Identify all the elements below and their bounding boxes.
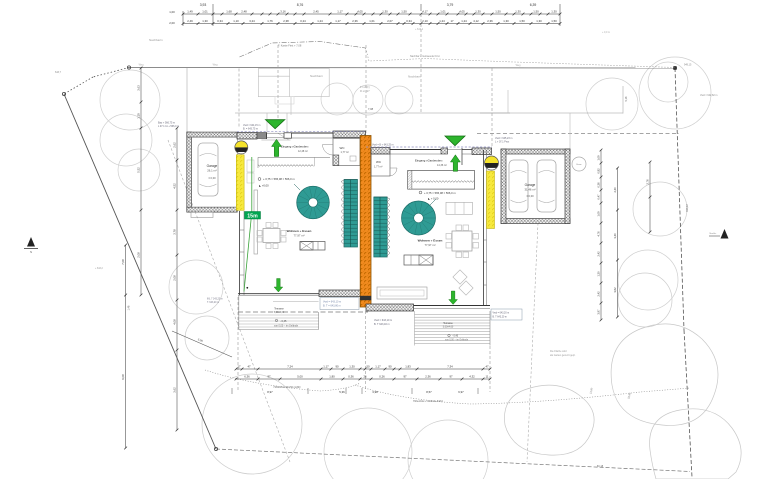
svg-text:949,12: 949,12: [686, 204, 689, 212]
svg-text:15m: 15m: [247, 213, 258, 219]
svg-text:3,97: 3,97: [597, 309, 601, 315]
svg-text:B. T 643,40 m: B. T 643,40 m: [374, 323, 390, 326]
svg-text:4,52: 4,52: [173, 183, 177, 189]
svg-text:1,30: 1,30: [382, 9, 388, 13]
svg-text:90: 90: [335, 364, 339, 368]
svg-text:1,49: 1,49: [187, 9, 193, 13]
svg-text:- 0,45: - 0,45: [280, 320, 287, 323]
svg-text:+ 643,2: + 643,2: [95, 268, 103, 270]
svg-text:3,78: 3,78: [173, 229, 177, 235]
svg-text:2,49: 2,49: [187, 19, 193, 23]
svg-text:1,77 m²: 1,77 m²: [341, 151, 350, 154]
svg-text:9,18: 9,18: [625, 96, 628, 101]
svg-text:1,80: 1,80: [329, 374, 335, 378]
svg-text:47: 47: [485, 364, 489, 368]
svg-text:0,26: 0,26: [379, 374, 385, 378]
svg-text:14,36 m²: 14,36 m²: [437, 164, 447, 167]
svg-text:Nachbar + Gebaeude First: Nachbar + Gebaeude First: [410, 55, 440, 58]
svg-text:26,1 m²: 26,1 m²: [207, 169, 217, 173]
svg-text:3,93: 3,93: [200, 3, 207, 7]
svg-text:2,36: 2,36: [352, 19, 358, 23]
svg-text:6,39: 6,39: [530, 3, 537, 7]
svg-text:Vwd = 643,20 m: Vwd = 643,20 m: [493, 313, 510, 315]
svg-text:2,10: 2,10: [422, 19, 428, 23]
svg-text:Fl.st. 4/7: Fl.st. 4/7: [360, 90, 370, 93]
svg-text:0,36: 0,36: [597, 182, 601, 188]
svg-text:WC: WC: [340, 146, 346, 150]
svg-text:Höhenlinie + Gelände 643,0: Höhenlinie + Gelände 643,0: [413, 400, 443, 403]
svg-text:Nachbarn: Nachbarn: [310, 74, 323, 78]
svg-text:+ 0,0 m: + 0,0 m: [602, 31, 610, 34]
svg-text:1,30: 1,30: [475, 9, 481, 13]
svg-text:B. T 643,20 m: B. T 643,20 m: [493, 317, 507, 319]
svg-text:± 0,00: ± 0,00: [208, 176, 216, 180]
svg-text:L 07.1 11 + 566,0 m: L 07.1 11 + 566,0 m: [158, 125, 179, 128]
svg-text:17: 17: [237, 364, 241, 368]
svg-text:2,42: 2,42: [597, 291, 601, 297]
svg-text:6,36: 6,36: [244, 374, 250, 378]
svg-text:1,50: 1,50: [519, 19, 525, 23]
svg-text:2,62: 2,62: [173, 142, 177, 148]
svg-text:97: 97: [449, 374, 453, 378]
svg-text:Höhenlinie 643,50 müNN: Höhenlinie 643,50 müNN: [274, 386, 301, 389]
svg-text:4,05: 4,05: [357, 9, 363, 13]
svg-text:1,30: 1,30: [536, 19, 542, 23]
svg-text:N: N: [30, 250, 32, 254]
svg-text:4,05: 4,05: [459, 9, 465, 13]
svg-text:3,24: 3,24: [249, 19, 255, 23]
svg-text:1,77 m²: 1,77 m²: [374, 166, 383, 169]
svg-text:◣ +0,00: ◣ +0,00: [259, 183, 269, 187]
svg-text:8,97: 8,97: [267, 390, 273, 394]
svg-text:Vwd = 643,10 m: Vwd = 643,10 m: [323, 301, 341, 304]
svg-text:643,7: 643,7: [55, 71, 62, 74]
svg-text:5,52: 5,52: [137, 167, 141, 173]
svg-text:1,24: 1,24: [461, 19, 467, 23]
svg-text:5,00x4,60: 5,00x4,60: [274, 311, 285, 314]
svg-text:0,24: 0,24: [300, 19, 306, 23]
svg-text:2,08: 2,08: [137, 252, 141, 258]
svg-text:3,16: 3,16: [280, 9, 286, 13]
svg-text:77,97 m²: 77,97 m²: [293, 234, 304, 238]
svg-text:2,36: 2,36: [487, 19, 493, 23]
svg-text:1,83: 1,83: [405, 364, 411, 368]
svg-text:Garage: Garage: [207, 164, 218, 168]
svg-text:- 0,45: - 0,45: [452, 335, 459, 338]
svg-text:1,01: 1,01: [369, 19, 375, 23]
svg-text:1,10: 1,10: [233, 19, 239, 23]
svg-text:+ 643,2: + 643,2: [415, 28, 424, 31]
svg-text:1,50: 1,50: [401, 9, 407, 13]
svg-text:2,40: 2,40: [613, 187, 617, 193]
svg-text:2,00: 2,00: [169, 21, 175, 25]
svg-text:3,63: 3,63: [137, 85, 141, 91]
svg-text:als Garten genutzt gepl.: als Garten genutzt gepl.: [550, 354, 576, 357]
svg-text:Nachbarn: Nachbarn: [408, 75, 421, 79]
svg-text:INL 7 343,25 m: INL 7 343,25 m: [207, 299, 223, 301]
svg-text:90: 90: [388, 364, 392, 368]
svg-text:5,00x4,60: 5,00x4,60: [443, 326, 454, 329]
svg-text:1,68: 1,68: [226, 9, 232, 13]
svg-text:31,46 m²: 31,46 m²: [524, 188, 535, 192]
svg-text:Baum: Baum: [576, 164, 582, 166]
svg-text:3,62: 3,62: [613, 287, 617, 293]
svg-text:1,17: 1,17: [323, 364, 329, 368]
svg-text:0,34: 0,34: [217, 19, 223, 23]
svg-text:1,24: 1,24: [317, 19, 323, 23]
svg-text:2,38: 2,38: [283, 19, 289, 23]
svg-text:1,17: 1,17: [337, 9, 343, 13]
svg-text:Vwd = B + 643,25 m: Vwd = B + 643,25 m: [372, 143, 394, 146]
svg-text:1,19: 1,19: [137, 113, 141, 119]
svg-text:Garage: Garage: [525, 183, 536, 187]
svg-text:1,50: 1,50: [533, 9, 539, 13]
svg-text:97: 97: [403, 374, 407, 378]
svg-text:Vwd = 643,10 m: Vwd = 643,10 m: [374, 319, 392, 322]
svg-text:1,09: 1,09: [597, 155, 601, 161]
svg-text:4,08: 4,08: [173, 319, 177, 325]
svg-text:± 0,00: ± 0,00: [526, 194, 534, 198]
svg-text:0,36: 0,36: [348, 374, 354, 378]
svg-text:1,30: 1,30: [597, 271, 601, 277]
svg-text:WC: WC: [376, 160, 382, 164]
svg-text:77,97 m²: 77,97 m²: [424, 243, 435, 247]
svg-text:2,36: 2,36: [425, 374, 431, 378]
svg-text:+ 0,75 = 565,08 = 566,0 m: + 0,75 = 565,08 = 566,0 m: [263, 177, 295, 181]
svg-text:B. = 643,75 m: B. = 643,75 m: [243, 128, 258, 131]
svg-text:B. T = 643,80 m: B. T = 643,80 m: [323, 305, 341, 308]
svg-text:26: 26: [363, 374, 367, 378]
svg-text:7,24: 7,24: [287, 364, 293, 368]
svg-text:3,62: 3,62: [173, 387, 177, 393]
svg-text:9,08: 9,08: [121, 374, 125, 380]
svg-text:8,57: 8,57: [426, 390, 432, 394]
svg-text:949,15: 949,15: [684, 64, 692, 67]
svg-text:6,97: 6,97: [458, 390, 464, 394]
svg-text:1,17: 1,17: [335, 19, 341, 23]
svg-text:1,01: 1,01: [440, 9, 446, 13]
svg-text:von 0,00 – im Gelände: von 0,00 – im Gelände: [274, 324, 299, 327]
svg-text:1,50: 1,50: [551, 19, 557, 23]
svg-text:1,01: 1,01: [202, 9, 208, 13]
svg-text:F. Kante First + 7,08: F. Kante First + 7,08: [278, 44, 302, 48]
svg-text:Weg: Weg: [139, 64, 145, 67]
svg-text:4,12: 4,12: [473, 19, 479, 23]
svg-text:L + 07,1 Prox: L + 07,1 Prox: [495, 141, 510, 144]
svg-text:1,17: 1,17: [375, 364, 381, 368]
svg-text:3,79: 3,79: [447, 3, 454, 7]
svg-text:0,82: 0,82: [597, 168, 601, 174]
svg-text:0,34: 0,34: [406, 19, 412, 23]
svg-text:Vwd = 642,82 m: Vwd = 642,82 m: [700, 94, 717, 97]
svg-text:8,76: 8,76: [297, 3, 304, 7]
svg-text:4,32: 4,32: [469, 374, 475, 378]
svg-text:1,09: 1,09: [597, 211, 601, 217]
svg-text:2,45: 2,45: [313, 9, 319, 13]
svg-text:4,76: 4,76: [597, 231, 601, 237]
svg-text:1,30: 1,30: [551, 9, 557, 13]
svg-text:1,50: 1,50: [495, 9, 501, 13]
svg-text:1,48: 1,48: [128, 305, 131, 310]
svg-text:2,07: 2,07: [387, 19, 393, 23]
svg-text:5,00: 5,00: [297, 374, 303, 378]
svg-text:◣ + 0,00: ◣ + 0,00: [428, 197, 439, 201]
svg-text:Weg: Weg: [213, 64, 219, 67]
svg-text:17: 17: [450, 19, 454, 23]
svg-text:von 0,00 – im Gelände: von 0,00 – im Gelände: [445, 340, 469, 342]
svg-text:3,40: 3,40: [613, 233, 617, 239]
svg-text:1,30: 1,30: [515, 9, 521, 13]
svg-text:5,36: 5,36: [339, 390, 345, 394]
svg-text:7,34: 7,34: [447, 364, 453, 368]
svg-text:+ 0,75 = 565,08 = 566,0 m: + 0,75 = 565,08 = 566,0 m: [424, 191, 456, 195]
svg-text:47: 47: [247, 364, 251, 368]
svg-text:2,42: 2,42: [597, 251, 601, 257]
svg-text:1,76: 1,76: [267, 19, 273, 23]
svg-text:2,48: 2,48: [241, 9, 247, 13]
svg-text:Weg: Weg: [516, 64, 522, 67]
svg-text:60,18: 60,18: [597, 465, 604, 468]
svg-text:2,08: 2,08: [173, 275, 177, 281]
svg-text:7,08: 7,08: [368, 107, 374, 111]
svg-text:1,00: 1,00: [169, 10, 175, 14]
svg-text:Die Fläche wird: Die Fläche wird: [550, 350, 567, 353]
svg-text:Wohnen + Essen: Wohnen + Essen: [287, 229, 312, 233]
svg-text:2,76: 2,76: [646, 179, 650, 185]
svg-text:11: 11: [486, 374, 489, 378]
svg-text:50: 50: [366, 364, 370, 368]
svg-text:97: 97: [267, 374, 271, 378]
svg-text:Nachbarin: Nachbarin: [149, 38, 163, 42]
svg-text:F 1.2 (F): F 1.2 (F): [360, 86, 370, 89]
svg-text:4,17: 4,17: [422, 9, 428, 13]
svg-text:Eingang »Garderobe«: Eingang »Garderobe«: [281, 145, 309, 149]
svg-text:1,30: 1,30: [349, 364, 355, 368]
svg-text:1,30: 1,30: [503, 19, 509, 23]
svg-text:Eingang »Garderobe«: Eingang »Garderobe«: [415, 159, 443, 163]
svg-text:12,48 m²: 12,48 m²: [298, 150, 308, 153]
svg-text:0,47: 0,47: [597, 194, 601, 200]
svg-text:1,24: 1,24: [439, 19, 445, 23]
svg-text:Nachb.: Nachb.: [710, 233, 717, 235]
svg-text:7,08: 7,08: [121, 259, 125, 265]
svg-text:Wohnen + Essen: Wohnen + Essen: [418, 239, 443, 243]
svg-text:T. 643,20 m: T. 643,20 m: [207, 302, 219, 304]
svg-text:1,30: 1,30: [202, 19, 208, 23]
